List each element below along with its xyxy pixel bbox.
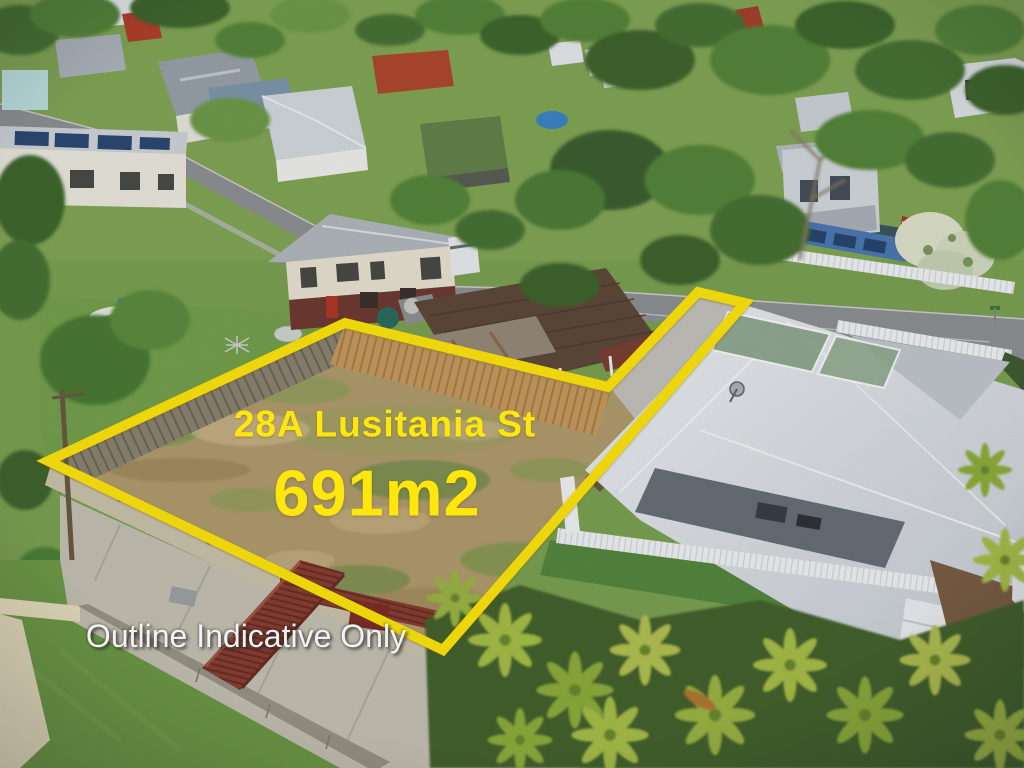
lot-area-label: 691m2	[273, 461, 480, 526]
aerial-photo-frame: 28A Lusitania St 691m2 Outline Indicativ…	[0, 0, 1024, 768]
lot-address-label: 28A Lusitania St	[234, 406, 536, 443]
outline-disclaimer-label: Outline Indicative Only	[86, 620, 406, 652]
